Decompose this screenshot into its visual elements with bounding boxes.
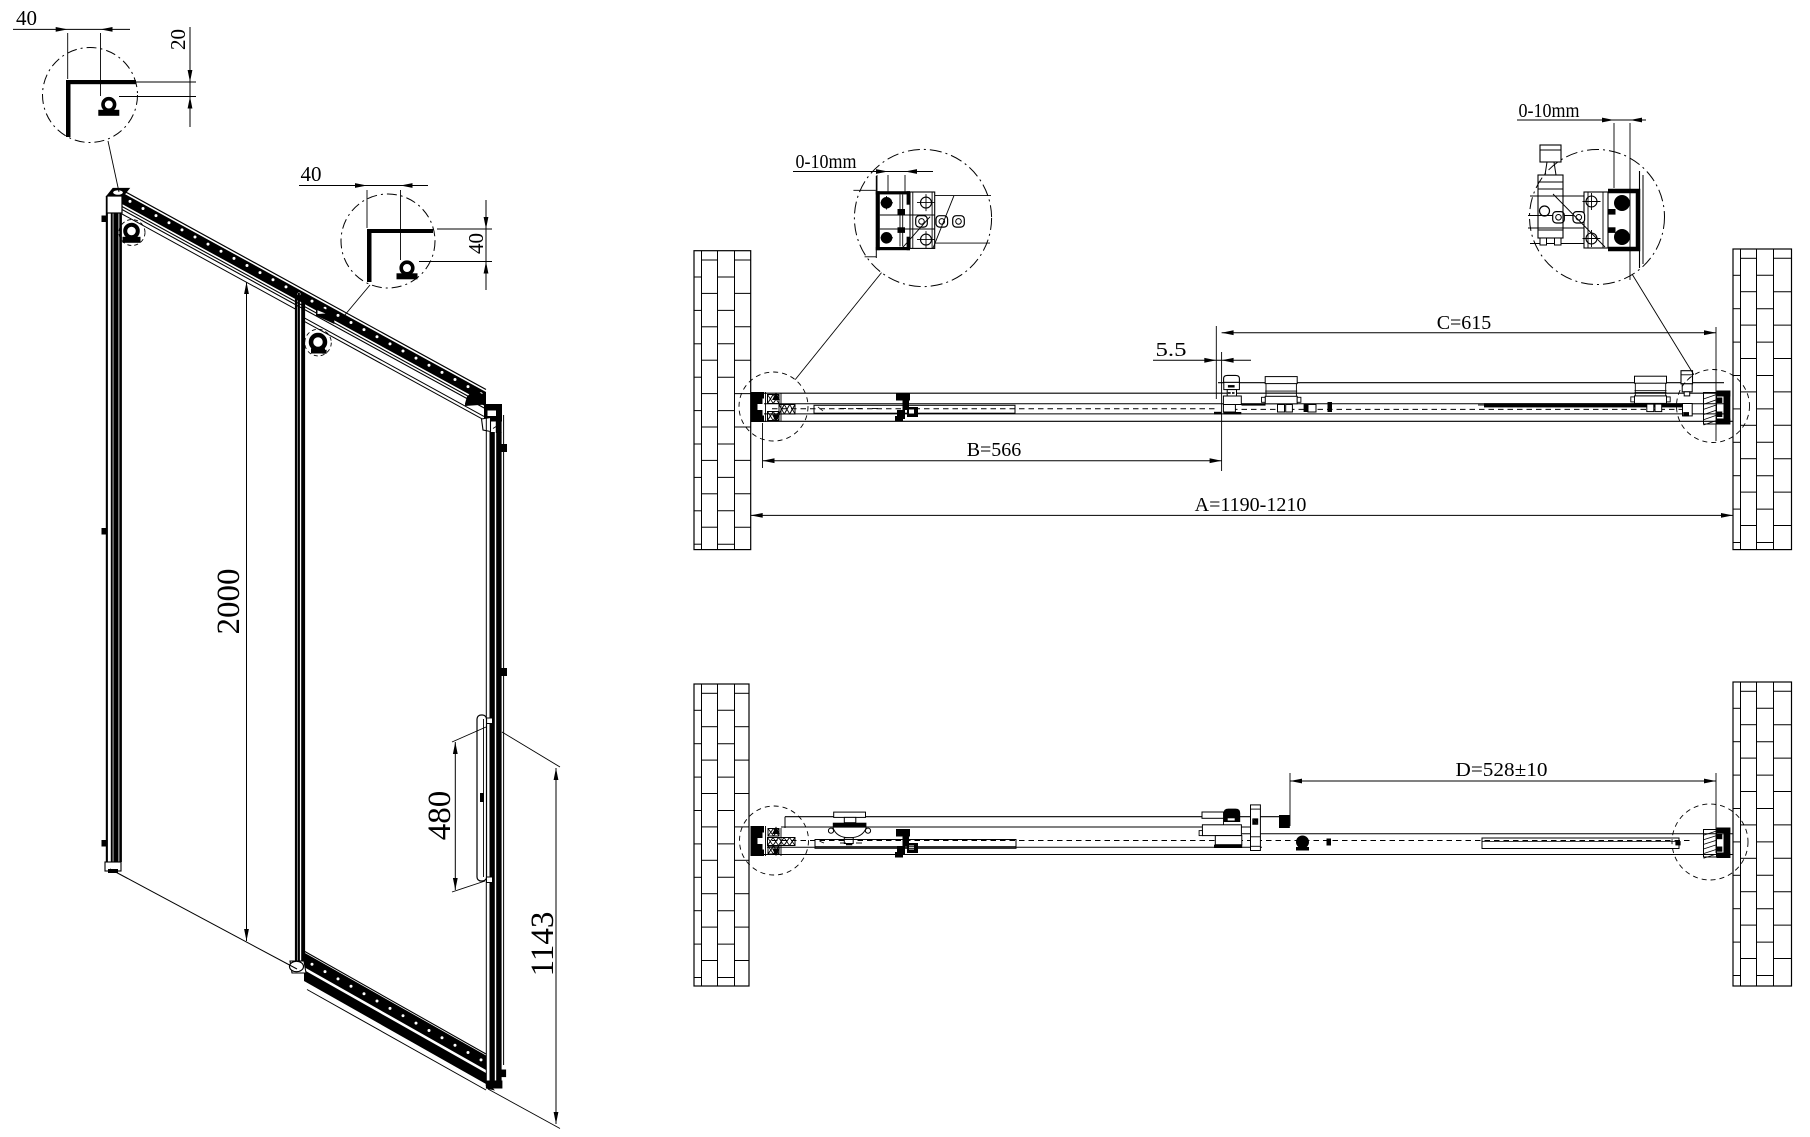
svg-text:5.5: 5.5 — [1156, 339, 1187, 361]
svg-text:40: 40 — [16, 6, 37, 30]
svg-text:C=615: C=615 — [1437, 312, 1492, 334]
svg-text:0-10mm: 0-10mm — [796, 151, 857, 173]
svg-text:20: 20 — [166, 29, 190, 50]
svg-text:40: 40 — [301, 162, 322, 186]
svg-text:A=1190-1210: A=1190-1210 — [1195, 494, 1307, 516]
svg-text:2000: 2000 — [211, 569, 247, 635]
svg-text:480: 480 — [422, 791, 458, 841]
svg-text:40: 40 — [464, 233, 488, 254]
svg-text:D=528±10: D=528±10 — [1456, 759, 1548, 781]
svg-text:B=566: B=566 — [967, 439, 1022, 461]
svg-text:0-10mm: 0-10mm — [1519, 100, 1580, 122]
